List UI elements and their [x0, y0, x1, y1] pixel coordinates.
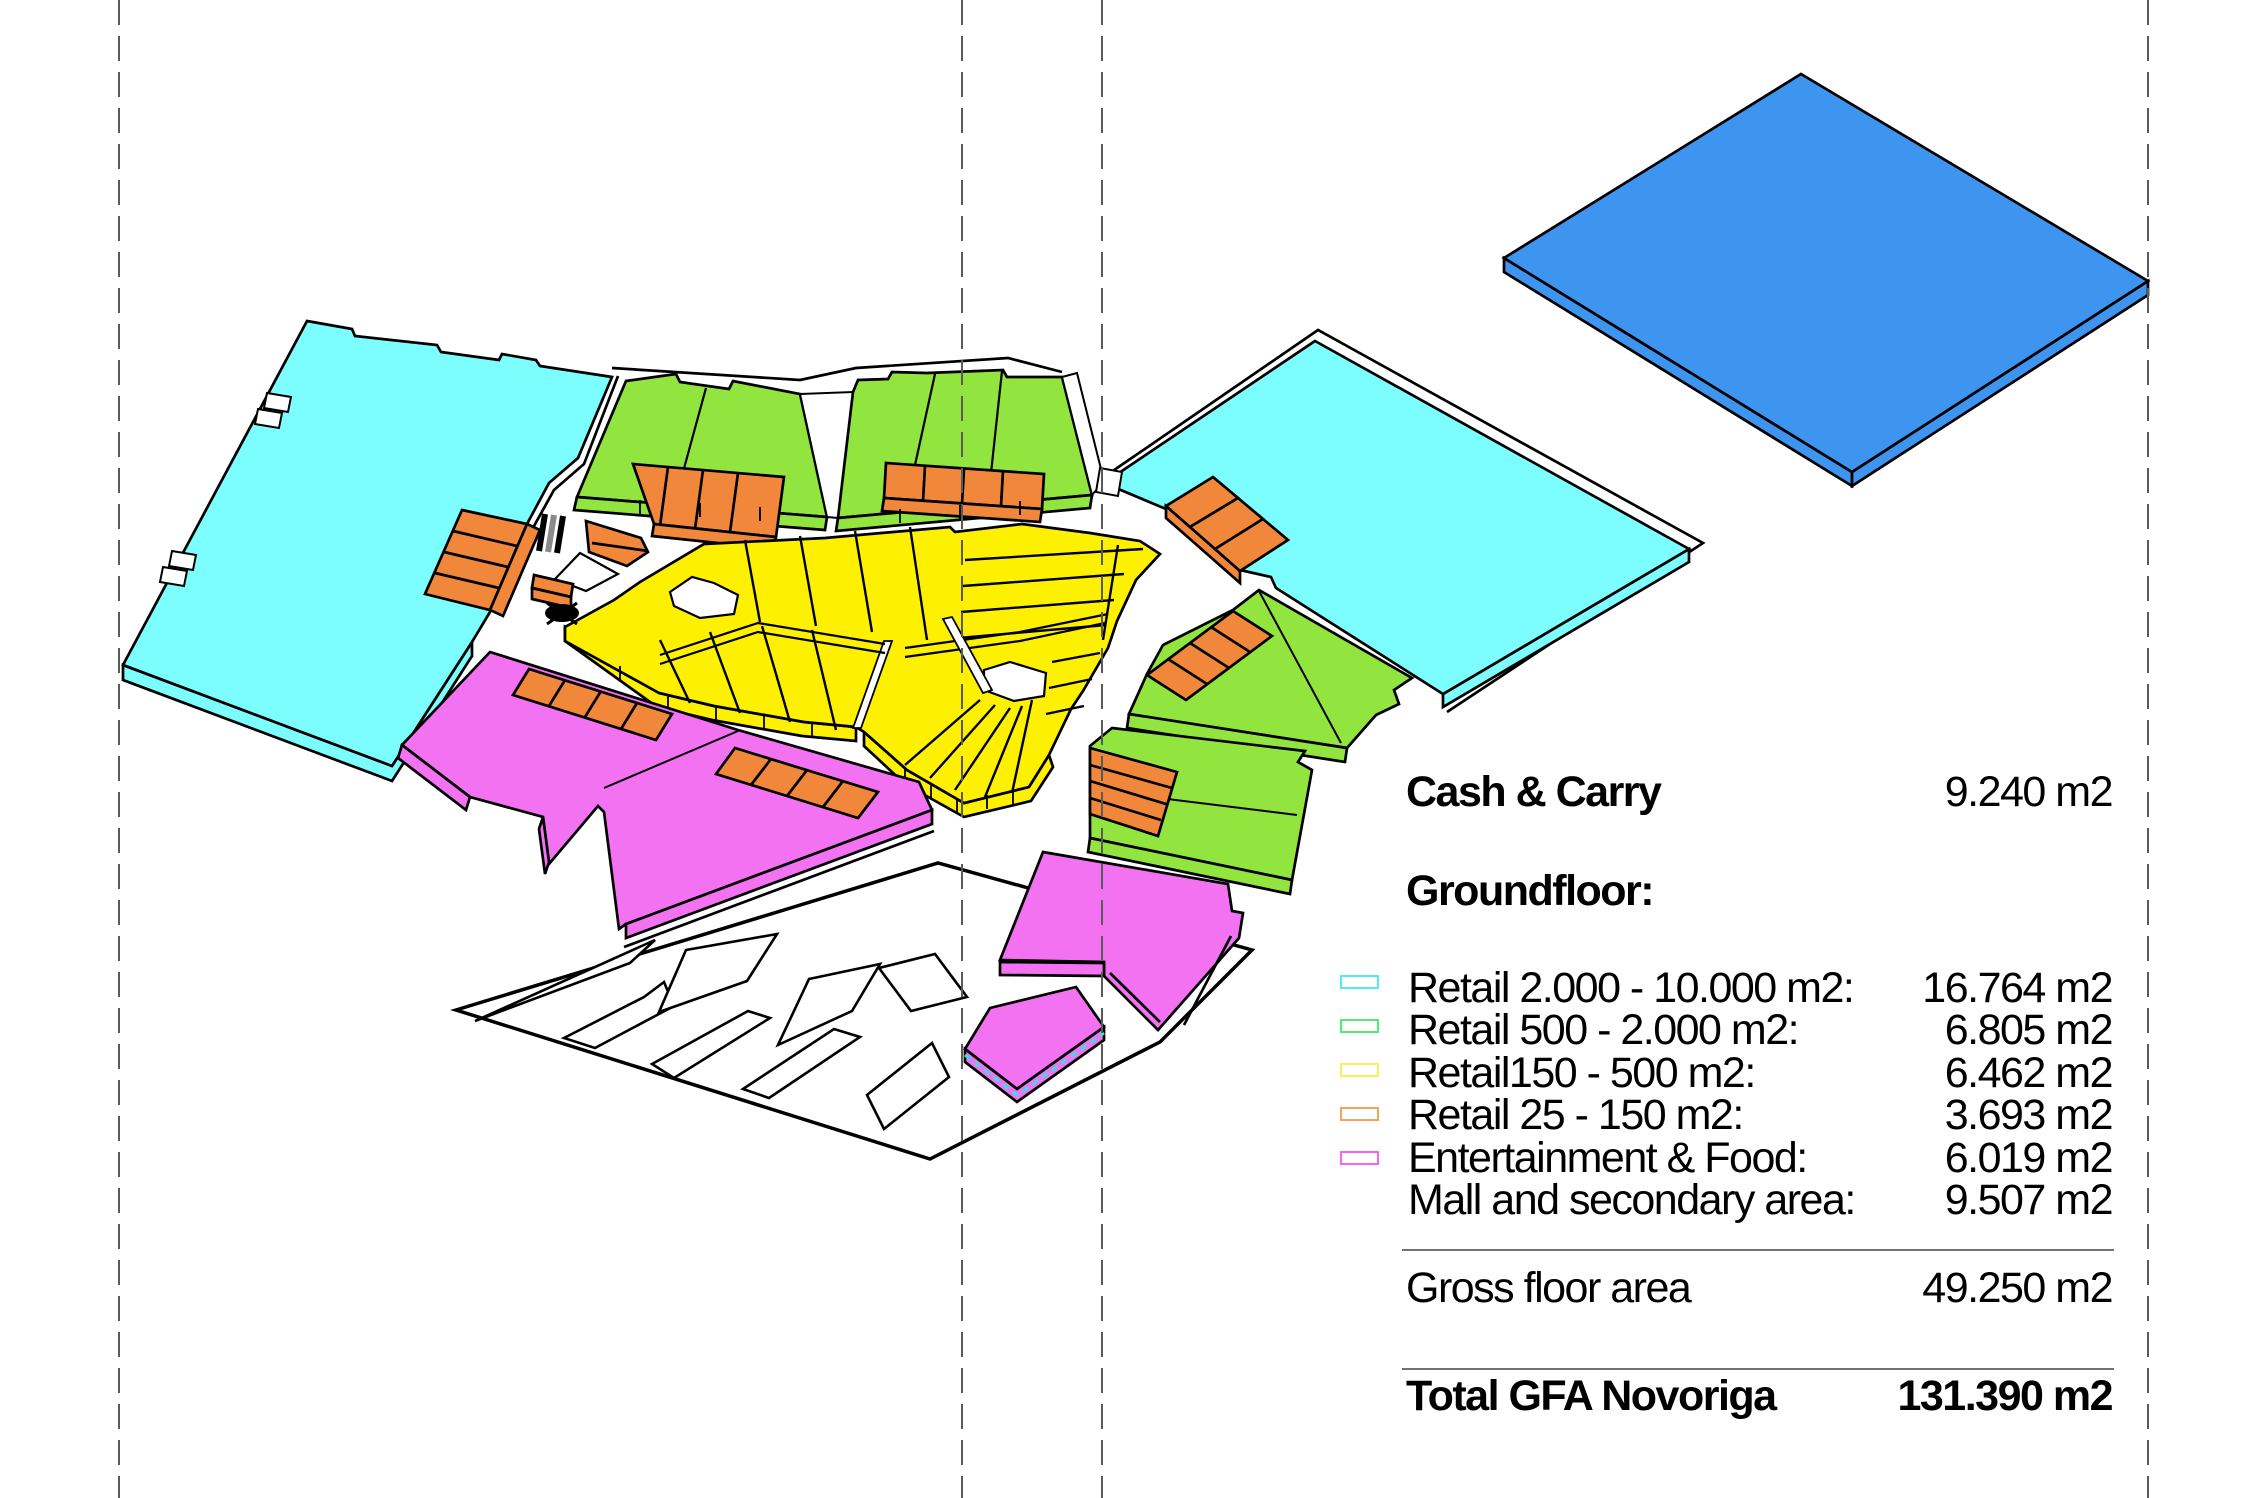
svg-text:Mall and secondary area:: Mall and secondary area:: [1408, 1176, 1855, 1224]
svg-text:Retail 500 - 2.000 m2:: Retail 500 - 2.000 m2:: [1408, 1006, 1798, 1054]
svg-text:Total GFA Novoriga: Total GFA Novoriga: [1406, 1372, 1778, 1420]
svg-text:9.240 m2: 9.240 m2: [1945, 768, 2112, 816]
svg-text:Retail150 - 500 m2:: Retail150 - 500 m2:: [1408, 1049, 1755, 1097]
svg-text:9.507 m2: 9.507 m2: [1945, 1176, 2112, 1224]
svg-text:131.390 m2: 131.390 m2: [1897, 1372, 2112, 1420]
svg-text:Retail 2.000 - 10.000 m2:: Retail 2.000 - 10.000 m2:: [1408, 964, 1853, 1012]
svg-text:Entertainment & Food:: Entertainment & Food:: [1408, 1134, 1807, 1182]
svg-text:49.250 m2: 49.250 m2: [1922, 1264, 2112, 1312]
svg-text:Retail 25 - 150 m2:: Retail 25 - 150 m2:: [1408, 1091, 1743, 1139]
svg-text:3.693 m2: 3.693 m2: [1945, 1091, 2112, 1139]
svg-text:6.805 m2: 6.805 m2: [1945, 1006, 2112, 1054]
svg-text:Cash & Carry: Cash & Carry: [1406, 768, 1662, 816]
svg-text:Gross floor area: Gross floor area: [1406, 1264, 1692, 1312]
svg-text:Groundfloor:: Groundfloor:: [1406, 867, 1653, 915]
svg-text:6.462 m2: 6.462 m2: [1945, 1049, 2112, 1097]
svg-text:6.019 m2: 6.019 m2: [1945, 1134, 2112, 1182]
svg-text:16.764 m2: 16.764 m2: [1922, 964, 2112, 1012]
